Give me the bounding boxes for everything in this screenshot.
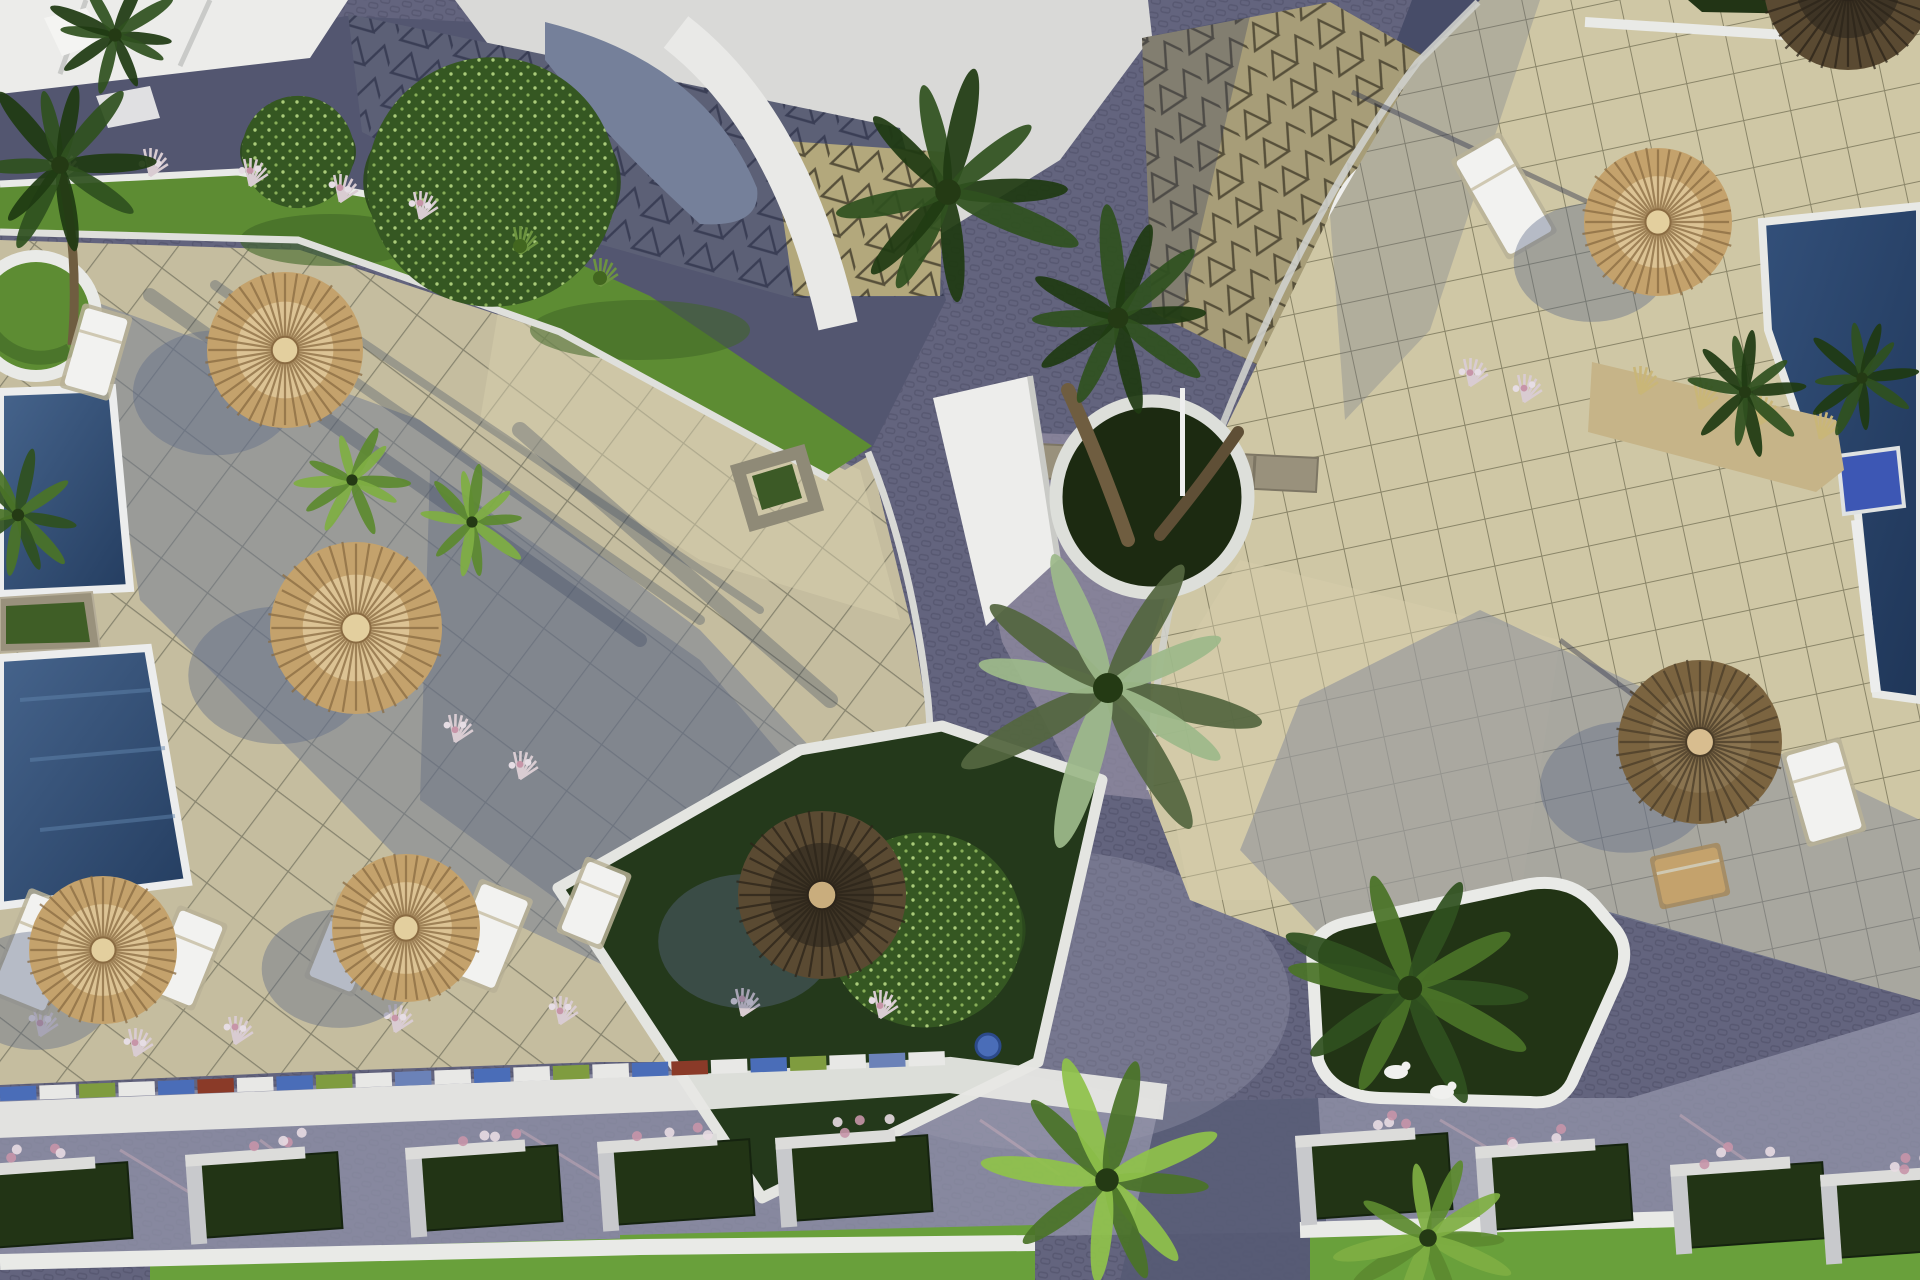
stone-planter-grass [6,602,90,644]
tuft-flower [549,1003,556,1010]
palm-crown [346,474,357,485]
curb-segment [198,1085,234,1086]
hedge-fill [788,1135,933,1221]
tuft-flower [239,167,246,174]
tuft-flower [517,761,524,768]
curb-segment [909,1058,945,1059]
tree-speckles [367,57,617,307]
tuft-flower [877,1002,884,1009]
palm-crown [466,516,477,527]
curb-segment [316,1081,352,1082]
tuft-flower [232,1024,239,1031]
curb-segment [790,1063,826,1064]
tuft-flower [1513,385,1520,392]
tuft-flower [509,762,516,769]
parasol-hub [1686,728,1714,756]
curb-segment [395,1078,431,1079]
curb-segment [119,1088,155,1089]
resort-scene-canvas [0,0,1920,1280]
tuft-flower [869,997,876,1004]
tuft-flower [460,721,467,728]
curb-segment [474,1075,510,1076]
curb-segment [435,1076,471,1077]
tuft-flower [1467,369,1474,376]
curb-segment [0,1093,36,1094]
palm-crown [108,28,121,41]
parasol-hub [272,337,299,364]
palm-crown [1093,673,1123,703]
curb-segment [553,1072,589,1073]
tuft-flower [329,181,336,188]
tuft-flower [132,1039,139,1046]
palm-crown [51,156,69,174]
curb-segment [632,1069,668,1070]
parasol-hub [808,881,837,910]
hedge-fill [0,1162,132,1248]
stone-frame-planter [738,452,816,524]
curb-segment [79,1090,115,1091]
tuft-flower [885,999,892,1006]
palm-crown [935,179,961,205]
aerial-resort-render [0,0,1920,1280]
tuft-flower [345,186,352,193]
tuft-flower [557,1008,564,1015]
tuft-flower [525,759,532,766]
statue-head [1402,1062,1411,1071]
tuft-leafball [513,239,527,253]
tuft-flower [337,184,344,191]
curb-segment [237,1084,273,1085]
tuft-flower [565,1004,572,1011]
tuft-flower [140,1039,147,1046]
curb-segment [158,1087,194,1088]
pool-step-bright [1838,448,1904,514]
tuft-leafball [593,271,607,285]
curb-segment [40,1091,76,1092]
palm-crown [1095,1168,1119,1192]
curb-segment [356,1079,392,1080]
palm-crown [1419,1229,1437,1247]
tuft-flower [1529,381,1536,388]
curb-segment [830,1061,866,1062]
curb-segment [869,1060,905,1061]
curb-segment [277,1082,313,1083]
parasol-hub [1645,209,1670,234]
parasol-hub [393,915,418,940]
hedge-fill [1488,1144,1633,1230]
palm-crown [1108,308,1129,329]
tuft-flower [452,726,459,733]
tuft-flower [409,200,416,207]
hedge-fill [610,1139,755,1225]
tuft-flower [392,1015,399,1022]
tuft-flower [255,165,262,172]
blue-pot [976,1034,1000,1058]
palm-crown [1856,372,1867,383]
tuft-flower [400,1014,407,1021]
palm-crown [1398,976,1422,1000]
tuft-flower [224,1024,231,1031]
tuft-flower [417,200,424,207]
curb-segment [711,1066,747,1067]
curb-segment [672,1067,708,1068]
hedge-fill [198,1152,343,1238]
curb-segment [593,1070,629,1071]
palm-crown [12,509,24,521]
tuft-flower [444,722,451,729]
hedge-fill [1683,1162,1828,1248]
tuft-flower [1475,369,1482,376]
curb-segment [514,1073,550,1074]
palm-crown [1739,386,1751,398]
statue-head [1448,1082,1457,1091]
lamp-pole [1180,388,1185,496]
tuft-flower [425,202,432,209]
tuft-flower [240,1025,247,1032]
tuft-flower [247,167,254,174]
parasol-hub [90,937,115,962]
hedge-fill [418,1145,563,1231]
tuft-flower [1521,385,1528,392]
parasol-hub [341,613,370,642]
tuft-flower [1459,368,1466,375]
tuft-flower [124,1038,131,1045]
curb-segment [751,1064,787,1065]
